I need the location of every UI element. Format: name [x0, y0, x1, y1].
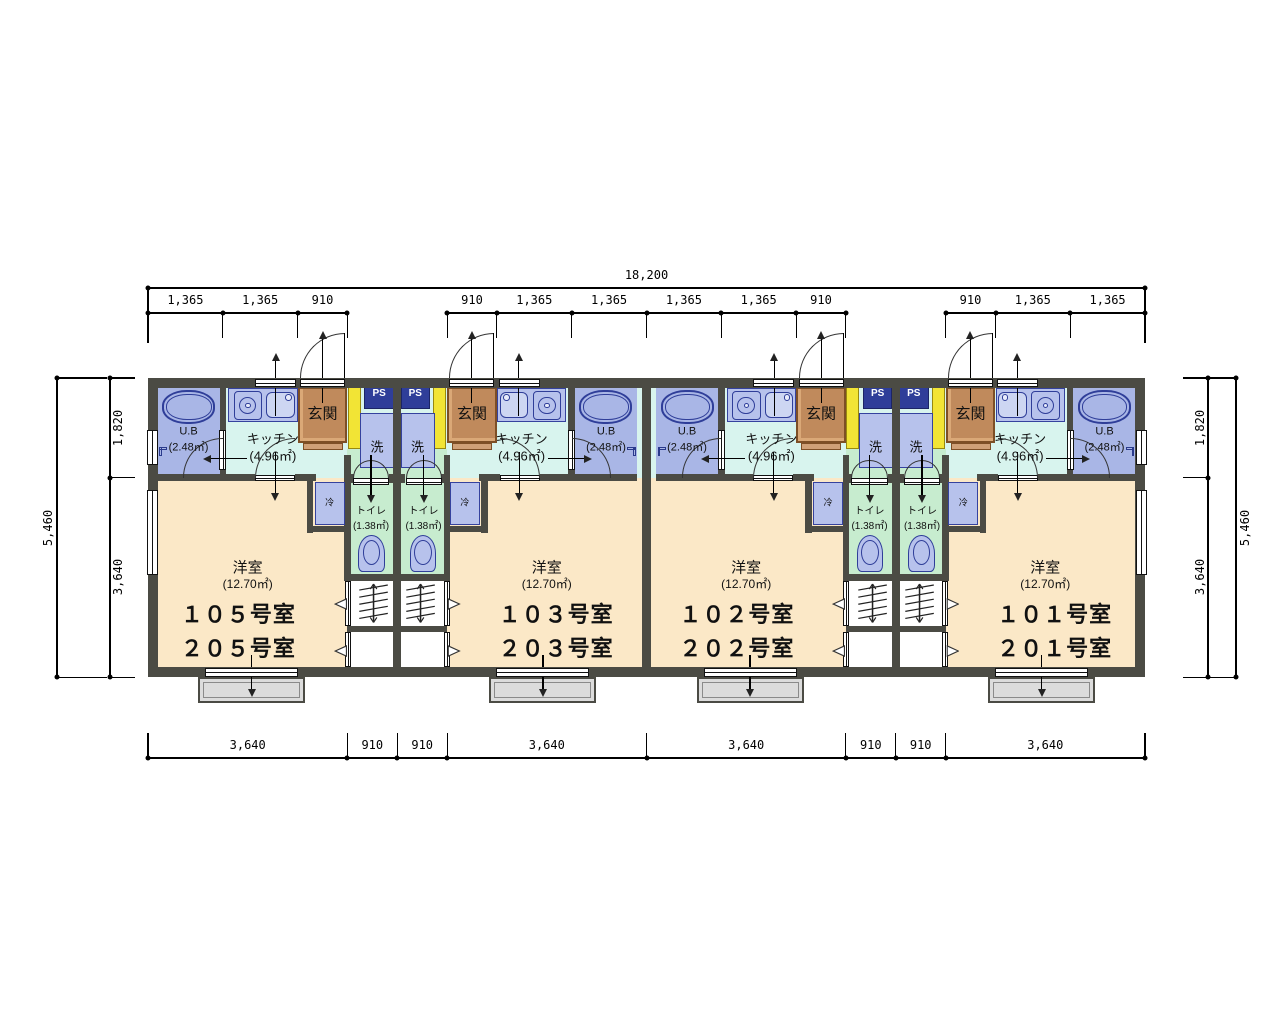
unit-101-bath-door-arrow — [1046, 458, 1084, 459]
dim-label: 1,365 — [591, 294, 627, 306]
unit-102-fridge-nook-wall — [805, 526, 846, 533]
party-wall — [892, 378, 900, 677]
dim-tick — [995, 313, 996, 338]
dim-tick — [1070, 313, 1071, 338]
unit-105-entrance-step — [303, 443, 343, 451]
unit-101-entrance-door-opening — [948, 379, 993, 388]
dim-tick — [110, 677, 135, 678]
unit-101-entrance-label: 玄関 — [955, 406, 985, 421]
unit-102-toilet-label: トイレ — [855, 507, 885, 517]
unit-102-bath-area-label: (2.48㎡) — [667, 442, 707, 453]
unit-102-living-area-label: (12.70㎡) — [721, 578, 771, 590]
unit-102-fridge-label: 冷 — [824, 499, 833, 508]
unit-101-bath-area-label: (2.48㎡) — [1085, 442, 1125, 453]
unit-105-toilet-label: トイレ — [356, 507, 386, 517]
unit-105-bath-door-arrow — [209, 458, 247, 459]
unit-105-bath-fixture — [159, 447, 162, 456]
unit-105-kitchen-area-label: (4.96㎡) — [249, 450, 296, 463]
unit-101-entrance-door-leaf — [992, 333, 993, 378]
unit-105-pipe-space-label: PS — [373, 389, 386, 399]
unit-102-bath-door-arrow — [707, 458, 745, 459]
dim-tick — [646, 313, 647, 338]
dim-tick — [845, 733, 846, 758]
unit-103-fridge-nook-wall — [481, 481, 488, 533]
dim-point — [55, 675, 60, 680]
unit-105-washer-label: 洗 — [370, 441, 383, 454]
dim-tick — [347, 313, 348, 338]
party-wall — [393, 378, 401, 677]
unit-103-toilet-fixture-seat — [414, 540, 432, 565]
unit-102-kitchen-door-arrow-head — [770, 493, 778, 501]
dim-point — [794, 311, 799, 316]
unit-101-shoe-cabinet — [932, 386, 945, 449]
dim-point — [55, 376, 60, 381]
dim-tick — [646, 733, 647, 758]
unit-103-kitchen-label: キッチン — [496, 433, 548, 446]
unit-102-kitchen-window-arrow-head — [770, 353, 778, 361]
unit-101-kitchen-window-arrow-head — [1013, 353, 1021, 361]
unit-101-bathtub-inner — [1082, 394, 1128, 420]
unit-105-toilet-wall — [344, 574, 397, 581]
unit-101-closet-open-arrow-icon — [946, 644, 960, 656]
unit-102-room-number-2f: ２０２号室 — [679, 638, 794, 660]
dim-tick — [397, 733, 398, 758]
dim-point — [108, 675, 113, 680]
unit-105-sink-faucet-icon — [285, 394, 292, 401]
unit-101-closet-hanger-icon — [902, 583, 937, 624]
unit-103-bath-door-arrow-head — [584, 455, 592, 463]
dim-tick — [110, 477, 135, 478]
dim-label: 1,365 — [666, 294, 702, 306]
unit-101-entrance-arrow-head — [966, 331, 974, 339]
unit-102-closet-open-arrow-icon — [832, 644, 846, 656]
unit-102-living-label: 洋室 — [731, 560, 761, 575]
unit-105-closet-open-arrow-icon — [334, 597, 348, 609]
unit-103-sink-faucet-icon — [503, 394, 510, 401]
dim-label: 910 — [810, 294, 832, 306]
unit-101-closet-divider-wall — [896, 626, 946, 633]
unit-101-toilet-door-arrow — [921, 455, 922, 497]
dim-point — [993, 311, 998, 316]
unit-105-fridge-label: 冷 — [325, 499, 334, 508]
unit-101-room-number-1f: １０１号室 — [997, 604, 1112, 626]
unit-103-room-number-1f: １０３号室 — [499, 604, 614, 626]
unit-103-toilet-wall — [397, 574, 450, 581]
dim-label: 3,640 — [728, 739, 764, 751]
unit-103-kitchen-window — [499, 379, 540, 388]
unit-102-bath-fixture — [658, 447, 661, 456]
unit-105-kitchen-window — [255, 379, 296, 388]
unit-103-toilet-door-arrow — [423, 455, 424, 497]
dim-point — [943, 756, 948, 761]
dim-point — [1234, 675, 1239, 680]
dim-point — [569, 311, 574, 316]
dim-point — [644, 756, 649, 761]
dim-label: 1,365 — [167, 294, 203, 306]
dim-tick — [447, 313, 448, 338]
dim-point — [1206, 475, 1211, 480]
unit-105-entrance-label: 玄関 — [307, 406, 337, 421]
unit-102-toilet-area-label: (1.38㎡) — [851, 522, 887, 532]
unit-102-bath-door-arrow-head — [701, 455, 709, 463]
unit-101-kitchen-door-arrow-head — [1014, 493, 1022, 501]
dim-tick — [447, 733, 448, 758]
unit-103-shoe-cabinet — [433, 386, 446, 449]
unit-103-entrance-step — [452, 443, 492, 451]
dim-label: 3,640 — [1194, 559, 1206, 595]
unit-101-toilet-wall — [896, 574, 949, 581]
unit-103-bathtub-inner — [583, 394, 629, 420]
dim-point — [395, 756, 400, 761]
unit-105-closet-open-arrow-icon — [334, 644, 348, 656]
unit-103-living-area-label: (12.70㎡) — [522, 578, 572, 590]
unit-105-closet-divider-wall — [347, 626, 397, 633]
floor-plan: U.B(2.48㎡)キッチン(4.96㎡)玄関PS洗冷トイレ(1.38㎡)洋室(… — [0, 0, 1280, 1024]
dim-line — [1235, 378, 1236, 677]
dim-tick — [57, 377, 107, 378]
unit-103-stove-burner-icon — [544, 403, 550, 409]
dim-tick — [571, 313, 572, 338]
unit-105-room-number-2f: ２０５号室 — [181, 638, 296, 660]
dim-label: 3,640 — [1027, 739, 1063, 751]
unit-103-bath-label: U.B — [597, 427, 615, 438]
unit-103-entrance-arrow-head — [468, 331, 476, 339]
dim-point — [445, 311, 450, 316]
unit-103-fridge-nook-wall — [447, 526, 488, 533]
unit-105-living-label: 洋室 — [233, 560, 263, 575]
unit-102-washer-label: 洗 — [869, 441, 882, 454]
unit-102-entrance-arrow — [821, 337, 822, 402]
dim-point — [843, 311, 848, 316]
unit-105-stove-burner-icon — [245, 403, 251, 409]
dim-point — [345, 756, 350, 761]
dim-point — [146, 756, 151, 761]
unit-101-washer-label: 洗 — [909, 441, 922, 454]
unit-102-toilet-fixture-seat — [861, 540, 879, 565]
unit-105-fridge-nook-wall — [307, 481, 314, 533]
dim-label: 1,365 — [1015, 294, 1051, 306]
unit-102-pipe-space-label: PS — [871, 389, 884, 399]
dim-tick — [945, 733, 946, 758]
unit-105-side-window — [147, 430, 158, 465]
dim-label: 910 — [960, 294, 982, 306]
unit-105-entrance-arrow-head — [319, 331, 327, 339]
unit-103-toilet-door-arrow-head — [420, 495, 428, 503]
unit-102-room-number-1f: １０２号室 — [679, 604, 794, 626]
dim-label: 910 — [411, 739, 433, 751]
unit-101-toilet-area-label: (1.38㎡) — [904, 522, 940, 532]
unit-103-pipe-space-label: PS — [409, 389, 422, 399]
dim-point — [220, 311, 225, 316]
unit-101-toilet-label: トイレ — [907, 507, 937, 517]
dim-label: 910 — [461, 294, 483, 306]
dim-label: 910 — [312, 294, 334, 306]
unit-103-balcony-door-arrow-head — [539, 689, 547, 697]
dim-tick — [1144, 313, 1145, 338]
dim-tick — [110, 377, 135, 378]
unit-105-bath-label: U.B — [179, 427, 197, 438]
unit-103-partition-wall — [479, 474, 500, 481]
unit-102-closet-hanger-icon — [855, 583, 890, 624]
dim-label: 1,365 — [741, 294, 777, 306]
unit-105-side-window — [147, 490, 158, 576]
unit-102-entrance-door-opening — [799, 379, 844, 388]
dim-point — [146, 286, 151, 291]
unit-103-toilet-area-label: (1.38㎡) — [405, 522, 441, 532]
unit-105-bathtub-inner — [166, 394, 212, 420]
dim-tick — [721, 313, 722, 338]
dim-tick — [297, 313, 298, 338]
unit-103-bath-fixture — [633, 447, 636, 456]
dim-tick — [57, 677, 107, 678]
unit-103-entrance-door-opening — [449, 379, 494, 388]
unit-103-toilet-label: トイレ — [409, 507, 439, 517]
unit-101-bath-fixture — [1132, 447, 1135, 456]
party-wall — [642, 378, 650, 677]
dim-tick — [147, 313, 148, 338]
unit-105-fridge-nook-wall — [307, 526, 348, 533]
unit-105-entrance-door-leaf — [344, 333, 345, 378]
unit-101-side-window — [1136, 430, 1147, 465]
unit-102-kitchen-label: キッチン — [745, 433, 797, 446]
unit-102-bath-label: U.B — [678, 427, 696, 438]
unit-105-bath-door-arrow-head — [203, 455, 211, 463]
unit-102-closet-open-arrow-icon — [832, 597, 846, 609]
unit-102-entrance-label: 玄関 — [806, 406, 836, 421]
unit-102-toilet-door-arrow-head — [866, 495, 874, 503]
unit-103-closet-open-arrow-icon — [447, 597, 461, 609]
dim-tick — [845, 313, 846, 338]
unit-105-toilet-door-arrow-head — [367, 495, 375, 503]
unit-102-balcony-door-arrow-head — [746, 689, 754, 697]
unit-105-balcony-sliding-door — [205, 668, 298, 677]
unit-103-living-label: 洋室 — [532, 560, 562, 575]
dim-label: 1,820 — [1194, 410, 1206, 446]
unit-102-entrance-door-leaf — [843, 333, 844, 378]
dim-line — [946, 312, 1145, 313]
dim-label: 3,640 — [529, 739, 565, 751]
dim-label: 1,365 — [516, 294, 552, 306]
unit-101-kitchen-area-label: (4.96㎡) — [997, 450, 1044, 463]
unit-103-entrance-arrow — [471, 337, 472, 402]
unit-101-entrance-arrow — [970, 337, 971, 402]
unit-102-kitchen-window — [753, 379, 794, 388]
unit-102-fridge-nook-wall — [805, 481, 812, 533]
unit-101-balcony-door-arrow-head — [1038, 689, 1046, 697]
unit-103-closet-divider-wall — [397, 626, 447, 633]
dim-point — [146, 311, 151, 316]
unit-101-closet-open-arrow-icon — [946, 597, 960, 609]
unit-101-side-window — [1136, 490, 1147, 576]
dim-tick — [1186, 377, 1236, 378]
dim-point — [1143, 756, 1148, 761]
dim-line — [1207, 378, 1208, 677]
unit-105-bath-area-label: (2.48㎡) — [169, 442, 209, 453]
unit-101-toilet-door-arrow-head — [918, 495, 926, 503]
unit-103-bath-door-arrow — [548, 458, 586, 459]
dim-line — [148, 287, 1145, 288]
unit-103-entrance-label: 玄関 — [457, 406, 487, 421]
unit-101-living-area-label: (12.70㎡) — [1020, 578, 1070, 590]
unit-101-fridge-nook-wall — [980, 481, 987, 533]
unit-105-kitchen-door-arrow-head — [271, 493, 279, 501]
dim-point — [1234, 376, 1239, 381]
unit-105-partition-wall — [295, 474, 316, 481]
unit-103-kitchen-door-arrow-head — [515, 493, 523, 501]
dim-point — [893, 756, 898, 761]
unit-102-toilet-wall — [843, 574, 896, 581]
unit-101-fridge-nook-wall — [946, 526, 987, 533]
dim-label: 3,640 — [230, 739, 266, 751]
unit-103-closet-open-arrow-icon — [447, 644, 461, 656]
unit-103-kitchen-window-arrow-head — [515, 353, 523, 361]
dim-tick — [895, 733, 896, 758]
dim-label: 1,365 — [242, 294, 278, 306]
unit-103-balcony-sliding-door — [496, 668, 589, 677]
dim-label: 5,460 — [1239, 509, 1251, 545]
unit-102-toilet-door-arrow — [869, 455, 870, 497]
unit-101-kitchen-window — [997, 379, 1038, 388]
dim-label: 3,640 — [112, 559, 124, 595]
unit-101-kitchen-label: キッチン — [994, 433, 1046, 446]
unit-101-entrance-step — [951, 443, 991, 451]
dim-point — [494, 311, 499, 316]
dim-label: 910 — [361, 739, 383, 751]
dim-tick — [147, 733, 148, 758]
dim-point — [644, 311, 649, 316]
unit-101-sink-faucet-icon — [1002, 394, 1009, 401]
unit-103-closet-hanger-icon — [403, 583, 438, 624]
dim-point — [943, 311, 948, 316]
unit-105-living-area-label: (12.70㎡) — [223, 578, 273, 590]
dim-point — [108, 475, 113, 480]
unit-102-bathtub-inner — [665, 394, 711, 420]
dim-point — [445, 756, 450, 761]
dim-point — [345, 311, 350, 316]
unit-101-balcony-sliding-door — [995, 668, 1088, 677]
unit-105-toilet-door-arrow — [370, 455, 371, 497]
dim-tick — [222, 313, 223, 338]
unit-103-bath-area-label: (2.48㎡) — [586, 442, 626, 453]
dim-tick — [1186, 677, 1236, 678]
unit-105-entrance-door-opening — [300, 379, 345, 388]
unit-105-toilet-area-label: (1.38㎡) — [353, 522, 389, 532]
unit-101-room-number-2f: ２０１号室 — [997, 638, 1112, 660]
unit-103-kitchen-area-label: (4.96㎡) — [498, 450, 545, 463]
unit-105-kitchen-window-arrow-head — [272, 353, 280, 361]
unit-101-fridge-label: 冷 — [959, 499, 968, 508]
dim-point — [108, 376, 113, 381]
dim-point — [1143, 286, 1148, 291]
unit-105-kitchen-label: キッチン — [247, 433, 299, 446]
unit-102-kitchen-area-label: (4.96㎡) — [748, 450, 795, 463]
dim-tick — [945, 313, 946, 338]
unit-101-bath-label: U.B — [1095, 427, 1113, 438]
dim-tick — [1144, 733, 1145, 758]
dim-tick — [1183, 477, 1208, 478]
unit-105-balcony-door-arrow-head — [248, 689, 256, 697]
dim-point — [1068, 311, 1073, 316]
dim-label: 1,820 — [112, 410, 124, 446]
unit-101-partition-wall — [977, 474, 998, 481]
dim-point — [719, 311, 724, 316]
unit-103-fridge-label: 冷 — [460, 499, 469, 508]
unit-101-pipe-space-label: PS — [907, 389, 920, 399]
unit-103-washer-label: 洗 — [411, 441, 424, 454]
dim-label: 5,460 — [42, 509, 54, 545]
unit-105-room-number-1f: １０５号室 — [181, 604, 296, 626]
unit-103-room-number-2f: ２０３号室 — [499, 638, 614, 660]
dim-point — [1143, 311, 1148, 316]
unit-102-closet-divider-wall — [846, 626, 896, 633]
unit-101-bath-door-arrow-head — [1082, 455, 1090, 463]
dim-label: 1,365 — [1090, 294, 1126, 306]
dim-label: 910 — [860, 739, 882, 751]
unit-103-entrance-door-leaf — [493, 333, 494, 378]
dim-tick — [796, 313, 797, 338]
dim-line — [148, 312, 347, 313]
dim-tick — [347, 733, 348, 758]
unit-102-entrance-arrow-head — [817, 331, 825, 339]
dim-label: 910 — [910, 739, 932, 751]
unit-102-partition-wall — [793, 474, 814, 481]
unit-101-living-label: 洋室 — [1030, 560, 1060, 575]
unit-102-balcony-sliding-door — [704, 668, 797, 677]
unit-102-entrance-step — [801, 443, 841, 451]
unit-105-closet-hanger-icon — [356, 583, 391, 624]
dim-point — [295, 311, 300, 316]
unit-102-sink-faucet-icon — [784, 394, 791, 401]
dim-line — [56, 378, 57, 677]
dim-tick — [496, 313, 497, 338]
unit-105-entrance-arrow — [322, 337, 323, 402]
dim-label: 18,200 — [625, 269, 668, 281]
dim-point — [843, 756, 848, 761]
